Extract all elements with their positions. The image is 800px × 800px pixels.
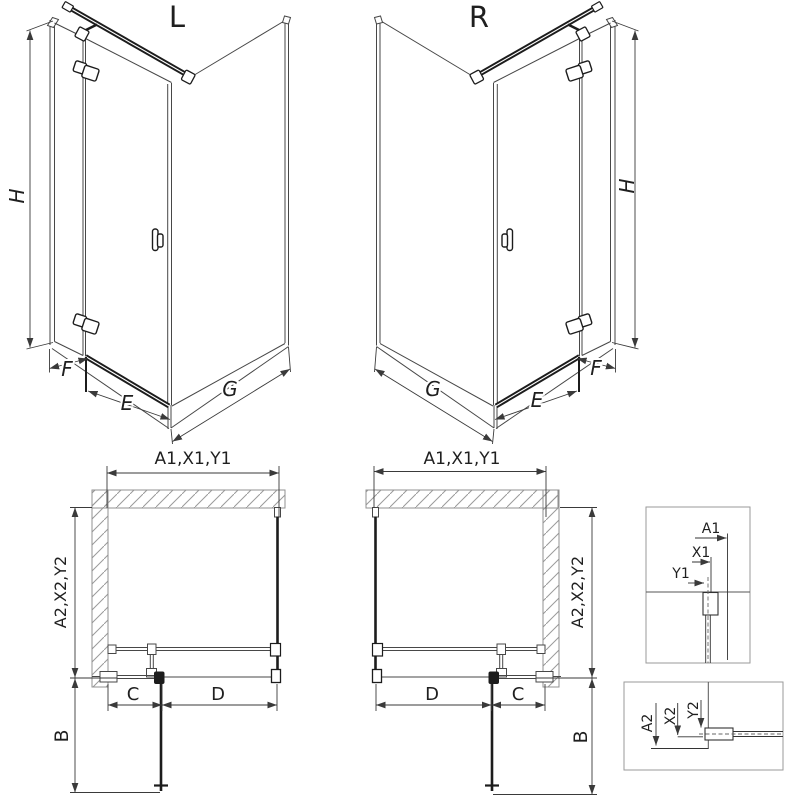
width-dims-label: A1,X1,Y1 [155, 449, 232, 469]
fixed-segment-label: C [127, 684, 140, 705]
variant-label-right: R [469, 0, 489, 34]
door-dim-label: E [531, 388, 544, 412]
detail-y2-label: Y2 [686, 701, 702, 719]
front-fixed-dim-label: F [61, 357, 73, 381]
back-wall-hatch [366, 490, 558, 508]
side-panel-dim-label: G [425, 377, 441, 401]
shower-enclosure-diagram: L H F E G R H F E G A1,X1,Y1 A2,X2,Y2 B [0, 0, 800, 800]
door-segment-label: D [211, 684, 225, 705]
height-dim-label: H [615, 178, 639, 193]
detail-y1-label: Y1 [671, 566, 689, 582]
front-fixed-dim-label: F [590, 356, 602, 380]
plan-view-right: A1,X1,Y1 A2,X2,Y2 B D C [366, 449, 597, 795]
detail-a2-label: A2 [640, 714, 656, 732]
detail-section-top: A1 X1 Y1 [646, 507, 750, 663]
iso-view-left: L H F E G [5, 0, 291, 444]
plan-right-dimensions [374, 466, 597, 795]
side-panel-dim-label: G [222, 377, 238, 401]
technical-drawing-page: L H F E G R H F E G A1,X1,Y1 A2,X2,Y2 B [0, 0, 800, 800]
detail-x1-label: X1 [692, 545, 711, 561]
side-wall-hatch [543, 490, 559, 687]
iso-view-right: R H F E G [375, 0, 640, 444]
door-segment-label: D [425, 684, 439, 705]
door-open-depth-label: B [570, 730, 592, 743]
width-dims-label: A1,X1,Y1 [424, 449, 501, 469]
side-wall-hatch [92, 490, 108, 687]
plan-view-left: A1,X1,Y1 A2,X2,Y2 B C D [51, 449, 285, 793]
back-wall-hatch [92, 490, 285, 508]
fixed-segment-label: C [512, 684, 525, 705]
depth-dims-label: A2,X2,Y2 [51, 556, 70, 628]
depth-dims-label: A2,X2,Y2 [568, 556, 587, 628]
height-dim-label: H [5, 188, 29, 203]
door-dim-label: E [121, 391, 134, 415]
variant-label-left: L [169, 0, 185, 34]
detail-section-bottom: A2 X2 Y2 [624, 682, 783, 770]
door-open-depth-label: B [51, 729, 73, 742]
detail-frame [646, 507, 750, 663]
wall-profile [703, 593, 718, 616]
detail-x2-label: X2 [663, 707, 679, 726]
detail-a1-label: A1 [702, 521, 720, 537]
